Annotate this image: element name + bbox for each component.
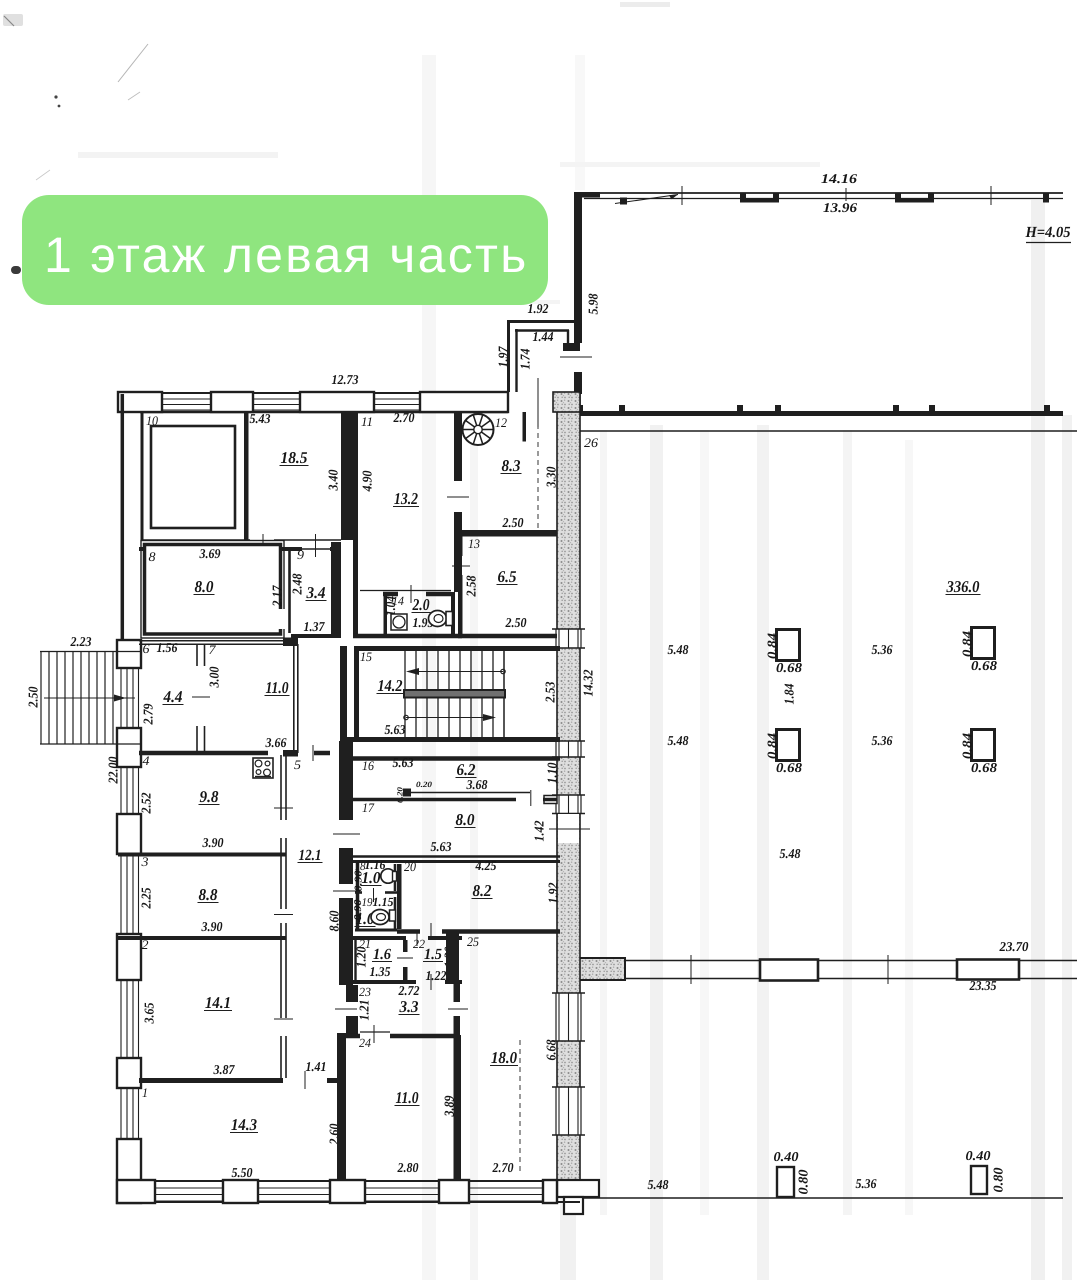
svg-text:1.10: 1.10 [545,762,560,783]
svg-text:0.84: 0.84 [960,631,975,657]
svg-text:1.41: 1.41 [306,1059,327,1074]
svg-text:0.84: 0.84 [960,733,975,759]
svg-text:8.8: 8.8 [199,885,218,904]
svg-text:3.89: 3.89 [442,1095,457,1117]
svg-text:1: 1 [142,1085,148,1100]
svg-text:5.48: 5.48 [668,733,689,748]
svg-text:0.68: 0.68 [776,660,802,675]
svg-text:0.40: 0.40 [774,1149,799,1164]
svg-text:2.70: 2.70 [393,410,415,425]
svg-text:2.48: 2.48 [290,573,305,595]
svg-text:1.35: 1.35 [370,964,391,979]
svg-text:11.0: 11.0 [266,678,289,697]
svg-text:1.5: 1.5 [424,946,442,963]
svg-text:5.50: 5.50 [232,1165,253,1180]
svg-text:3.00: 3.00 [207,666,222,688]
svg-text:2.17: 2.17 [270,584,285,607]
svg-text:3.69: 3.69 [199,546,221,561]
svg-text:14.16: 14.16 [821,171,857,186]
svg-text:1.56: 1.56 [157,640,178,655]
svg-text:336.0: 336.0 [946,577,980,596]
svg-text:1.20: 1.20 [354,946,369,967]
svg-text:0.20: 0.20 [416,780,432,789]
svg-text:23.70: 23.70 [999,939,1029,954]
svg-text:3: 3 [140,854,149,869]
svg-text:H=4.05: H=4.05 [1025,224,1071,241]
svg-text:5.98: 5.98 [586,293,601,314]
svg-text:18.5: 18.5 [281,448,308,467]
svg-text:3.68: 3.68 [466,777,488,792]
svg-text:0.80: 0.80 [991,1167,1006,1192]
svg-text:4.4: 4.4 [163,687,183,706]
svg-text:20: 20 [404,859,416,874]
svg-text:1.15: 1.15 [373,895,394,909]
svg-text:2.80: 2.80 [397,1160,419,1175]
svg-text:15: 15 [360,649,372,664]
svg-text:18.0: 18.0 [491,1048,517,1067]
svg-text:0.90: 0.90 [353,899,364,921]
svg-text:6.68: 6.68 [544,1039,559,1060]
svg-text:14.3: 14.3 [231,1115,257,1134]
svg-text:1.92: 1.92 [546,882,561,903]
svg-text:2.70: 2.70 [492,1160,514,1175]
svg-text:2.72: 2.72 [398,983,420,998]
svg-text:2.0: 2.0 [412,595,430,614]
svg-text:2.50: 2.50 [502,515,524,530]
svg-text:5.36: 5.36 [872,733,893,748]
svg-text:1.37: 1.37 [304,619,326,634]
svg-text:0.68: 0.68 [971,658,997,673]
svg-text:8.3: 8.3 [502,456,521,475]
svg-text:3.30: 3.30 [544,466,559,488]
svg-text:5.43: 5.43 [250,411,271,426]
svg-text:0.68: 0.68 [971,760,997,775]
svg-text:7: 7 [209,642,217,657]
svg-text:3.65: 3.65 [142,1002,157,1024]
svg-text:3.66: 3.66 [265,735,287,750]
svg-text:22.00: 22.00 [106,756,121,784]
svg-text:14.32: 14.32 [581,669,596,696]
svg-text:1.74: 1.74 [518,348,533,369]
svg-text:0.84: 0.84 [765,633,780,659]
svg-text:1.92: 1.92 [528,301,549,316]
svg-text:3.40: 3.40 [326,469,341,491]
svg-text:9: 9 [297,547,305,562]
svg-text:8: 8 [149,549,157,564]
svg-text:4.90: 4.90 [360,470,375,492]
svg-text:13.2: 13.2 [394,489,418,508]
svg-text:2.50: 2.50 [505,615,527,630]
svg-text:12.73: 12.73 [332,372,359,387]
svg-text:24: 24 [359,1036,371,1050]
svg-text:2.50: 2.50 [26,686,41,708]
svg-text:8.2: 8.2 [473,881,492,900]
svg-text:2.52: 2.52 [139,792,154,814]
svg-text:0.40: 0.40 [966,1148,991,1163]
svg-text:5.63: 5.63 [431,839,452,854]
svg-text:23: 23 [359,985,371,999]
svg-text:5.36: 5.36 [856,1176,877,1191]
svg-text:1.44: 1.44 [533,329,554,344]
svg-text:3.87: 3.87 [213,1062,236,1077]
svg-text:0.84: 0.84 [765,733,780,759]
svg-text:3.90: 3.90 [202,835,224,850]
svg-text:5: 5 [294,757,302,772]
svg-text:3.3: 3.3 [399,997,419,1016]
svg-text:14.1: 14.1 [205,993,231,1012]
svg-text:12.1: 12.1 [299,847,322,864]
svg-text:1.6: 1.6 [373,946,391,963]
svg-text:13.96: 13.96 [823,200,857,215]
svg-text:26: 26 [584,435,599,450]
svg-text:14.2: 14.2 [378,676,403,695]
svg-text:1 этаж левая часть: 1 этаж левая часть [44,227,529,283]
svg-text:8.0: 8.0 [195,577,214,596]
svg-text:1.97: 1.97 [496,345,511,367]
svg-text:16: 16 [362,758,374,773]
svg-text:1.42: 1.42 [532,820,547,841]
svg-text:0.90: 0.90 [354,870,365,892]
svg-text:0.68: 0.68 [776,760,802,775]
svg-text:11: 11 [361,414,373,429]
svg-text:5.36: 5.36 [872,642,893,657]
svg-text:8.0: 8.0 [456,810,475,829]
svg-text:1.21: 1.21 [357,1000,372,1021]
svg-text:1.84: 1.84 [782,683,797,704]
svg-text:5.48: 5.48 [668,642,689,657]
svg-text:13: 13 [468,536,480,551]
svg-text:5.48: 5.48 [780,846,801,861]
svg-text:12: 12 [495,415,507,430]
svg-text:4.25: 4.25 [475,858,497,873]
svg-text:2.58: 2.58 [464,575,479,597]
svg-text:0.80: 0.80 [796,1169,811,1194]
svg-text:11.0: 11.0 [396,1088,419,1107]
svg-text:5.63: 5.63 [385,722,406,737]
svg-text:2.53: 2.53 [543,681,558,703]
svg-text:6: 6 [143,641,151,656]
svg-text:2.23: 2.23 [70,634,92,649]
svg-text:3.90: 3.90 [201,919,223,934]
svg-text:8.60: 8.60 [327,910,342,931]
svg-text:1.22: 1.22 [426,968,447,983]
svg-text:9.8: 9.8 [200,787,219,806]
svg-text:4: 4 [143,753,151,768]
svg-text:25: 25 [467,934,479,949]
svg-text:1.04: 1.04 [383,596,398,616]
svg-text:3.4: 3.4 [306,583,326,602]
svg-text:5.63: 5.63 [393,755,414,770]
svg-text:2.25: 2.25 [139,887,154,909]
svg-text:5.48: 5.48 [648,1177,669,1192]
svg-text:2: 2 [142,937,150,952]
svg-text:17: 17 [362,800,374,815]
svg-text:6.5: 6.5 [498,567,517,586]
svg-text:2.79: 2.79 [141,703,156,725]
svg-text:23.35: 23.35 [969,978,997,993]
